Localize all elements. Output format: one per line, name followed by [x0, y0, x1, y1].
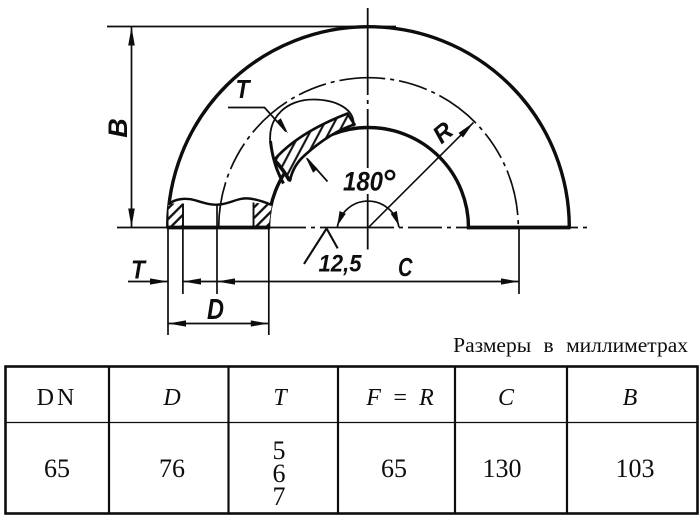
- svg-text:D: D: [162, 385, 180, 411]
- svg-text:76: 76: [159, 454, 185, 483]
- svg-text:B: B: [623, 385, 638, 411]
- svg-text:T: T: [236, 74, 252, 104]
- svg-text:C: C: [498, 385, 515, 411]
- svg-text:7: 7: [273, 482, 286, 511]
- svg-text:D: D: [207, 294, 224, 326]
- svg-text:Размеры в миллиметрах: Размеры в миллиметрах: [453, 333, 688, 357]
- svg-text:T: T: [273, 385, 288, 411]
- svg-text:65: 65: [381, 454, 407, 483]
- svg-text:F = R: F = R: [365, 385, 434, 411]
- svg-text:C: C: [398, 252, 413, 282]
- svg-text:B: B: [103, 118, 133, 138]
- svg-text:DN: DN: [37, 385, 78, 411]
- svg-text:65: 65: [44, 454, 70, 483]
- svg-text:180: 180: [343, 167, 383, 197]
- svg-text:12,5: 12,5: [319, 251, 363, 278]
- svg-text:T: T: [131, 255, 147, 285]
- svg-text:103: 103: [616, 454, 655, 483]
- svg-text:130: 130: [483, 454, 522, 483]
